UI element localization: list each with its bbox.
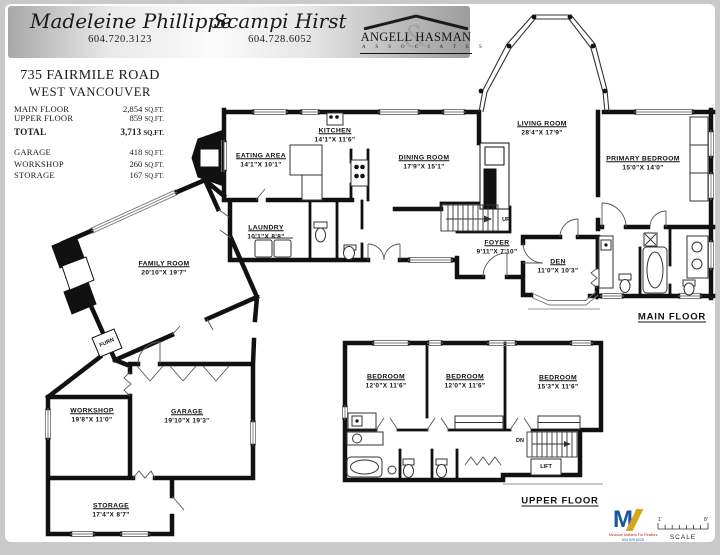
annotation-lift: LIFT: [540, 464, 552, 470]
scale-end-label: 8': [704, 517, 708, 523]
floor-plan-svg: [0, 0, 720, 555]
room-label-workshop: WORKSHOP19'8"X 11'0": [70, 407, 114, 423]
room-label-den: DEN11'0"X 10'3": [538, 258, 579, 274]
measure-masters-logo: M Measure Masters For Realtors 604 929 8…: [609, 508, 657, 542]
scale-bar: 1' 8' SCALE: [655, 515, 713, 545]
scale-label: SCALE: [670, 534, 696, 541]
room-label-bedroom-1: BEDROOM12'0"X 11'6": [366, 373, 407, 389]
room-label-garage: GARAGE19'10"X 19'3": [164, 408, 209, 424]
room-label-bedroom-3: BEDROOM15'3"X 11'6": [538, 374, 579, 390]
scale-start-label: 1': [658, 517, 662, 523]
logo-phone: 604 929 8225: [609, 538, 657, 542]
annotation-up: UP: [502, 217, 510, 223]
room-label-foyer: FOYER9'11"X 7'10": [477, 239, 518, 255]
room-label-primary-bedroom: PRIMARY BEDROOM15'0"X 14'0": [606, 155, 680, 171]
room-label-dining-room: DINING ROOM17'9"X 15'1": [399, 154, 450, 170]
annotation-dn: DN: [516, 438, 524, 444]
main-floor-heading: MAIN FLOOR: [638, 312, 706, 323]
room-label-laundry: LAUNDRY10'1"X 8'8": [247, 224, 284, 240]
room-label-eating-area: EATING AREA14'1"X 10'1": [236, 152, 286, 168]
room-label-kitchen: KITCHEN14'1"X 11'6": [315, 127, 356, 143]
logo-tagline: Measure Masters For Realtors: [609, 533, 657, 537]
upper-floor-heading: UPPER FLOOR: [521, 496, 598, 507]
room-label-family-room: FAMILY ROOM20'10"X 19'7": [138, 260, 189, 276]
room-label-bedroom-2: BEDROOM12'0"X 11'6": [445, 373, 486, 389]
room-label-storage: STORAGE17'4"X 8'7": [92, 502, 129, 518]
room-label-living-room: LIVING ROOM28'4"X 17'9": [517, 120, 567, 136]
